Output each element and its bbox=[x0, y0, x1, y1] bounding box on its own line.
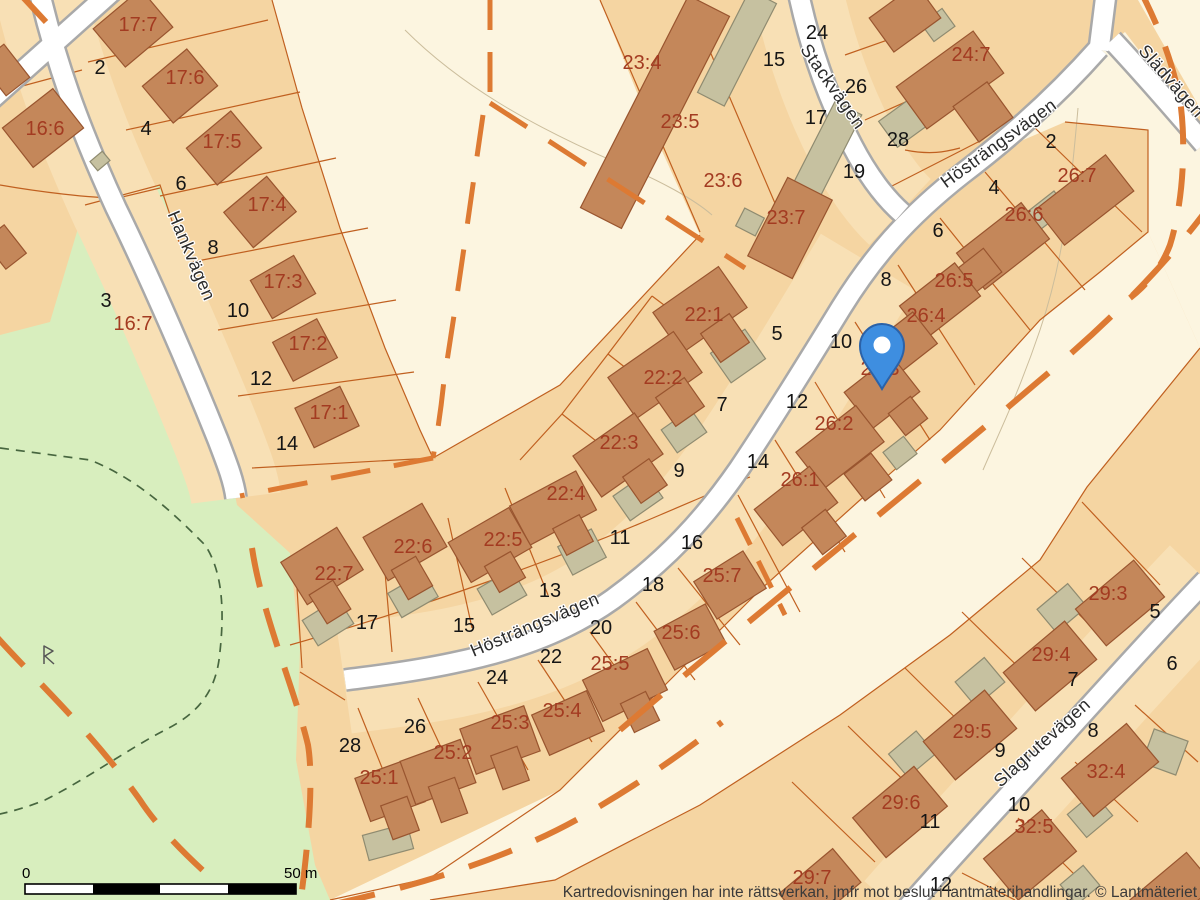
parcel-id-label: 22:3 bbox=[600, 432, 639, 454]
parcel-id-label: 22:6 bbox=[394, 536, 433, 558]
parcel-id-label: 17:3 bbox=[264, 271, 303, 293]
house-number-label: 17 bbox=[805, 107, 827, 129]
parcel-id-label: 32:4 bbox=[1087, 761, 1126, 783]
house-number-label: 5 bbox=[1149, 601, 1160, 623]
parcel-id-label: 25:4 bbox=[543, 700, 582, 722]
house-number-label: 5 bbox=[771, 323, 782, 345]
house-number-label: 7 bbox=[1067, 669, 1078, 691]
parcel-id-label: 25:1 bbox=[360, 767, 399, 789]
house-number-label: 8 bbox=[207, 237, 218, 259]
house-number-label: 15 bbox=[763, 49, 785, 71]
scale-zero-label: 0 bbox=[22, 865, 30, 882]
map-viewport[interactable]: HankvägenStackvägenHösträngsvägenHösträn… bbox=[0, 0, 1200, 900]
house-number-label: 4 bbox=[988, 177, 999, 199]
parcel-id-label: 23:5 bbox=[661, 111, 700, 133]
parcel-id-label: 22:1 bbox=[685, 304, 724, 326]
house-number-label: 2 bbox=[94, 57, 105, 79]
parcel-id-label: 17:1 bbox=[310, 402, 349, 424]
house-number-label: 13 bbox=[539, 580, 561, 602]
parcel-id-label: 26:7 bbox=[1058, 165, 1097, 187]
house-number-label: 10 bbox=[1008, 794, 1030, 816]
parcel-id-label: 25:2 bbox=[434, 742, 473, 764]
house-number-label: 3 bbox=[100, 290, 111, 312]
house-number-label: 9 bbox=[994, 740, 1005, 762]
parcel-id-label: 29:3 bbox=[1089, 583, 1128, 605]
parcel-id-label: 22:2 bbox=[644, 367, 683, 389]
house-number-label: 10 bbox=[227, 300, 249, 322]
house-number-label: 8 bbox=[1087, 720, 1098, 742]
house-number-label: 26 bbox=[845, 76, 867, 98]
parcel-id-label: 22:7 bbox=[315, 563, 354, 585]
house-number-label: 16 bbox=[681, 532, 703, 554]
parcel-id-label: 17:5 bbox=[203, 131, 242, 153]
house-number-label: 28 bbox=[887, 129, 909, 151]
parcel-id-label: 26:2 bbox=[815, 413, 854, 435]
house-number-label: 17 bbox=[356, 612, 378, 634]
house-number-label: 11 bbox=[610, 527, 631, 549]
house-number-label: 8 bbox=[880, 269, 891, 291]
parcel-id-label: 25:7 bbox=[703, 565, 742, 587]
parcel-id-label: 16:6 bbox=[26, 118, 65, 140]
house-number-label: 12 bbox=[250, 368, 272, 390]
house-number-label: 22 bbox=[540, 646, 562, 668]
parcel-id-label: 25:5 bbox=[591, 653, 630, 675]
house-number-label: 28 bbox=[339, 735, 361, 757]
house-number-label: 11 bbox=[920, 811, 941, 833]
parcel-id-label: 26:4 bbox=[907, 305, 946, 327]
parcel-id-label: 22:4 bbox=[547, 483, 586, 505]
house-number-label: 9 bbox=[673, 460, 684, 482]
scale-end-label: 50 m bbox=[284, 865, 317, 882]
house-number-label: 10 bbox=[830, 331, 852, 353]
house-number-label: 6 bbox=[1166, 653, 1177, 675]
parcel-id-label: 25:3 bbox=[491, 712, 530, 734]
parcel-id-label: 17:6 bbox=[166, 67, 205, 89]
house-number-label: 20 bbox=[590, 617, 612, 639]
pin-hole bbox=[874, 337, 891, 354]
house-number-label: 14 bbox=[747, 451, 769, 473]
house-number-label: 6 bbox=[932, 220, 943, 242]
parcel-id-label: 32:5 bbox=[1015, 816, 1054, 838]
house-number-label: 24 bbox=[806, 22, 828, 44]
house-number-label: 4 bbox=[140, 118, 151, 140]
house-number-label: 7 bbox=[716, 394, 727, 416]
house-number-label: 15 bbox=[453, 615, 475, 637]
house-number-label: 12 bbox=[786, 391, 808, 413]
parcel-id-label: 23:4 bbox=[623, 52, 662, 74]
parcel-id-label: 17:7 bbox=[119, 14, 158, 36]
parcel-id-label: 29:4 bbox=[1032, 644, 1071, 666]
house-number-label: 2 bbox=[1045, 131, 1056, 153]
parcel-id-label: 29:6 bbox=[882, 792, 921, 814]
parcel-id-label: 17:2 bbox=[289, 333, 328, 355]
parcel-id-label: 25:6 bbox=[662, 622, 701, 644]
cadastral-map[interactable]: HankvägenStackvägenHösträngsvägenHösträn… bbox=[0, 0, 1200, 900]
parcel-id-label: 26:5 bbox=[935, 270, 974, 292]
parcel-id-label: 22:5 bbox=[484, 529, 523, 551]
parcel-id-label: 24:7 bbox=[952, 44, 991, 66]
parcel-id-label: 17:4 bbox=[248, 194, 287, 216]
map-attribution: Kartredovisningen har inte rättsverkan, … bbox=[563, 884, 1198, 900]
house-number-label: 19 bbox=[843, 161, 865, 183]
house-number-label: 18 bbox=[642, 574, 664, 596]
parcel-id-label: 26:1 bbox=[781, 469, 820, 491]
parcel-id-label: 26:6 bbox=[1005, 204, 1044, 226]
parcel-id-label: 29:5 bbox=[953, 721, 992, 743]
parcel-id-label: 23:6 bbox=[704, 170, 743, 192]
house-number-label: 6 bbox=[175, 173, 186, 195]
parcel-id-label: 23:7 bbox=[767, 207, 806, 229]
house-number-label: 26 bbox=[404, 716, 426, 738]
house-number-label: 24 bbox=[486, 667, 508, 689]
parcel-id-label: 16:7 bbox=[114, 313, 153, 335]
house-number-label: 14 bbox=[276, 433, 298, 455]
